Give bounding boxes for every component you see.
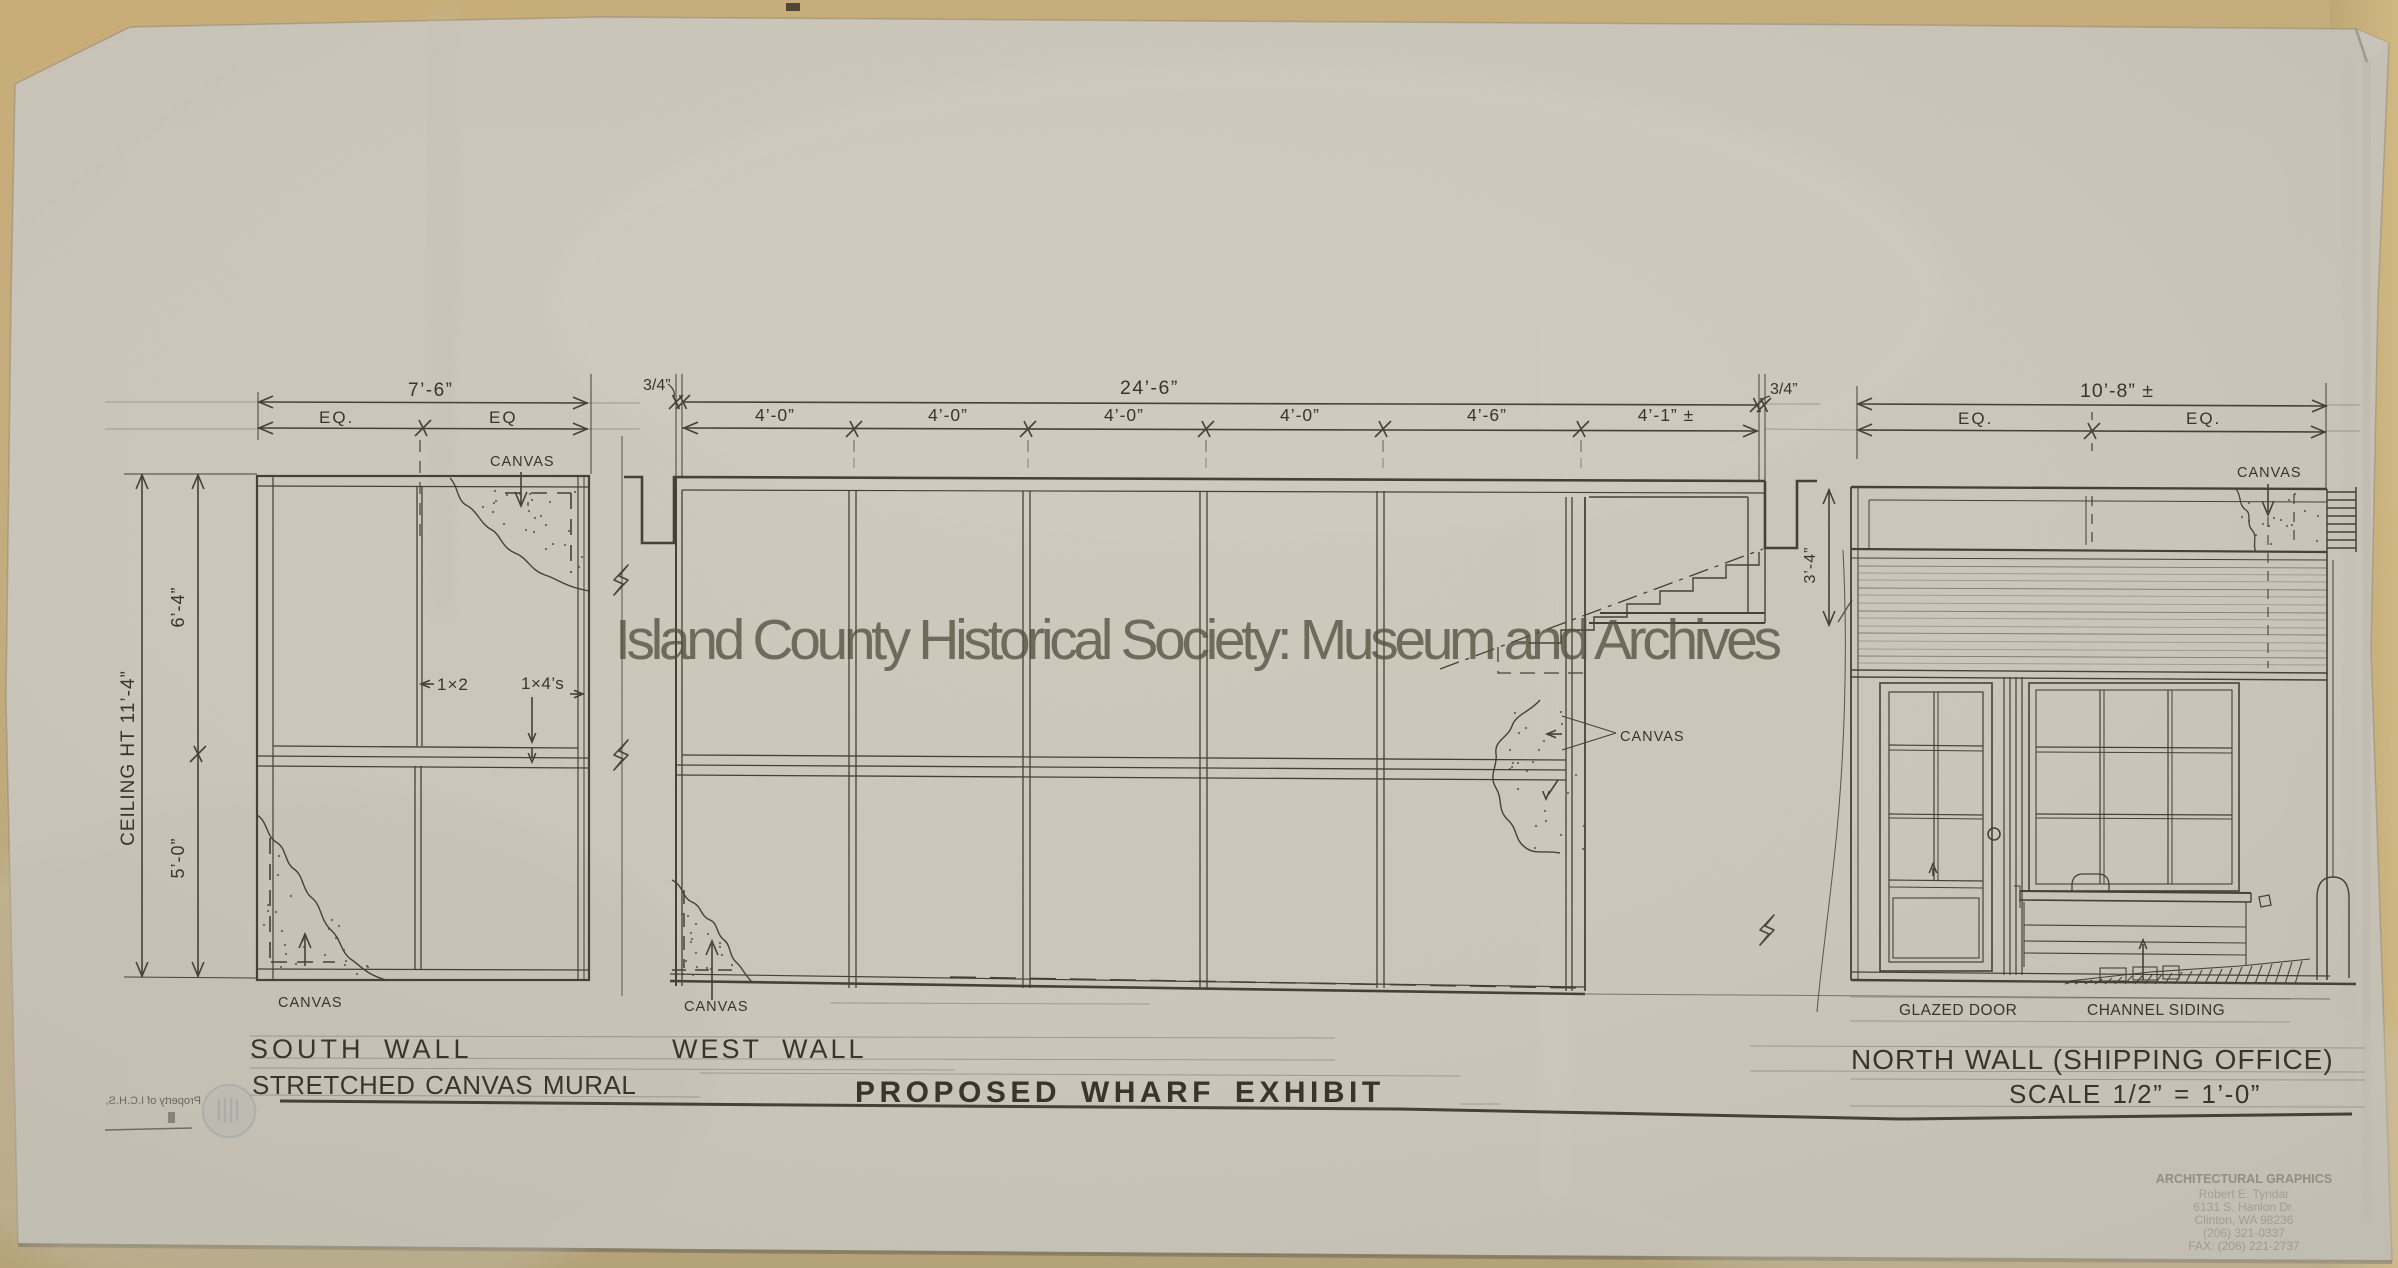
svg-text:CEILING HT 11’-4”: CEILING HT 11’-4”	[118, 670, 139, 846]
svg-text:CANVAS: CANVAS	[1620, 729, 1685, 745]
svg-text:3/4”: 3/4”	[643, 377, 671, 394]
svg-text:4’-0”: 4’-0”	[1104, 405, 1144, 425]
svg-text:5’-0”: 5’-0”	[168, 837, 188, 878]
svg-text:Clinton, WA 98236: Clinton, WA 98236	[2195, 1213, 2294, 1227]
svg-text:CANVAS: CANVAS	[684, 999, 749, 1015]
svg-text:24’-6”: 24’-6”	[1120, 377, 1179, 399]
svg-text:EQ.: EQ.	[319, 408, 354, 427]
svg-text:CANVAS: CANVAS	[278, 995, 343, 1011]
svg-text:CANVAS: CANVAS	[2237, 465, 2302, 481]
svg-text:EQ: EQ	[489, 408, 518, 427]
svg-text:4’-6”: 4’-6”	[1467, 405, 1507, 425]
svg-text:7’-6”: 7’-6”	[408, 380, 454, 401]
svg-text:SCALE 1/2” = 1’-0”: SCALE 1/2” = 1’-0”	[2009, 1079, 2261, 1109]
svg-text:FAX: (206) 221-2737: FAX: (206) 221-2737	[2188, 1239, 2300, 1253]
svg-text:Island County Historical Socie: Island County Historical Society: Museum…	[615, 608, 1782, 672]
svg-text:ARCHITECTURAL GRAPHICS: ARCHITECTURAL GRAPHICS	[2156, 1172, 2332, 1186]
svg-text:(206) 321-0337: (206) 321-0337	[2203, 1226, 2285, 1240]
svg-text:Robert E. Tyndar: Robert E. Tyndar	[2199, 1187, 2290, 1201]
svg-text:1×2: 1×2	[437, 675, 469, 694]
svg-text:6’-4”: 6’-4”	[168, 586, 188, 627]
svg-text:4’-1” ±: 4’-1” ±	[1638, 405, 1694, 425]
svg-text:STRETCHED CANVAS MURAL: STRETCHED CANVAS MURAL	[252, 1070, 636, 1100]
svg-text:6131 S. Hanlon Dr.: 6131 S. Hanlon Dr.	[2193, 1200, 2294, 1214]
svg-text:EQ.: EQ.	[1958, 409, 1993, 428]
svg-text:GLAZED DOOR: GLAZED DOOR	[1899, 1002, 2017, 1019]
svg-text:1×4’s: 1×4’s	[521, 674, 564, 693]
svg-text:4’-0”: 4’-0”	[755, 405, 795, 425]
svg-text:NORTH WALL (SHIPPING OFFICE): NORTH WALL (SHIPPING OFFICE)	[1851, 1044, 2334, 1075]
svg-text:3/4”: 3/4”	[1770, 381, 1798, 398]
svg-text:CHANNEL SIDING: CHANNEL SIDING	[2087, 1002, 2225, 1019]
svg-text:4’-0”: 4’-0”	[1280, 405, 1320, 425]
svg-text:Property of I.C.H.S,: Property of I.C.H.S,	[106, 1095, 201, 1107]
svg-text:EQ.: EQ.	[2186, 409, 2221, 428]
svg-text:3’-4”: 3’-4”	[1802, 546, 1819, 583]
svg-text:SOUTH WALL: SOUTH WALL	[250, 1034, 473, 1064]
svg-text:CANVAS: CANVAS	[490, 454, 555, 470]
svg-text:4’-0”: 4’-0”	[928, 405, 968, 425]
svg-text:10’-8” ±: 10’-8” ±	[2080, 380, 2154, 402]
svg-text:WEST WALL: WEST WALL	[672, 1034, 867, 1064]
svg-text:PROPOSED WHARF EXHIBIT: PROPOSED WHARF EXHIBIT	[855, 1076, 1385, 1109]
